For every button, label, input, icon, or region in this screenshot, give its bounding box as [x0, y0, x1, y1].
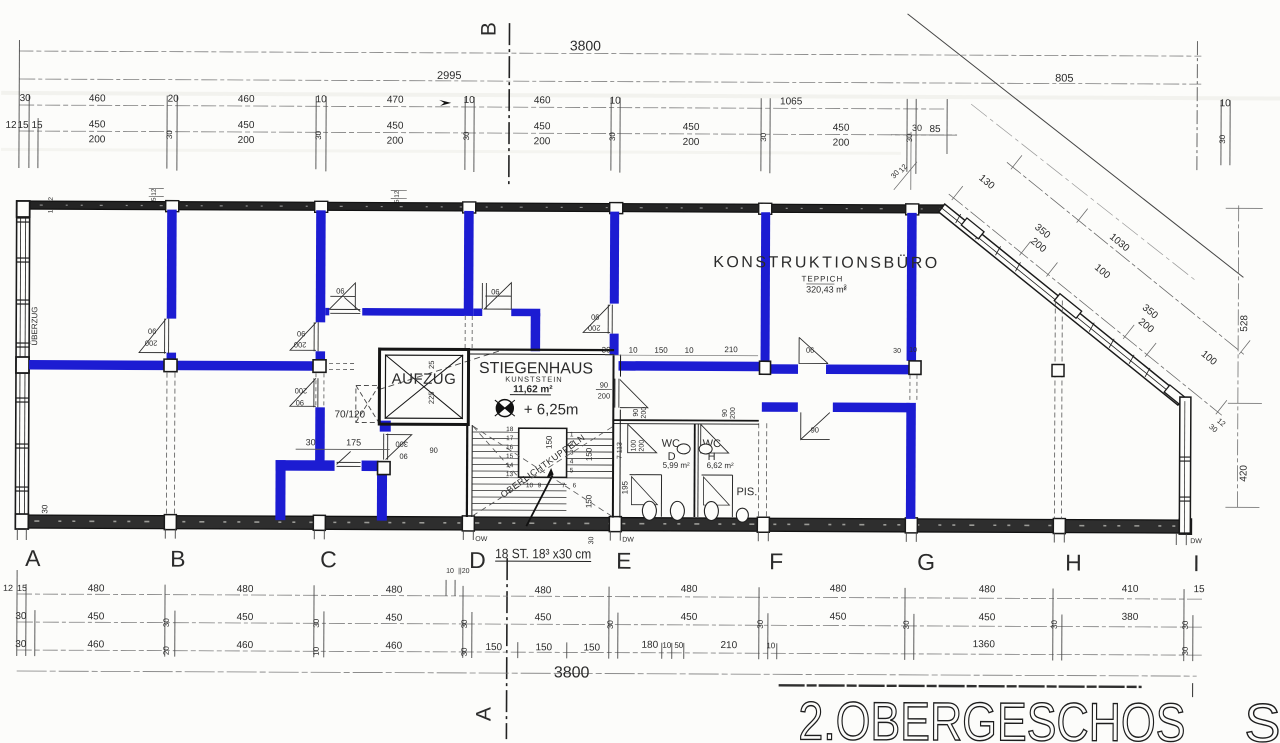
svg-text:90: 90: [296, 398, 304, 407]
svg-text:450: 450: [387, 121, 404, 132]
svg-text:6,62 m²: 6,62 m²: [707, 461, 734, 470]
svg-text:420: 420: [1239, 465, 1250, 482]
svg-text:480: 480: [88, 583, 105, 594]
svg-text:480: 480: [237, 584, 254, 595]
svg-text:PIS.: PIS.: [736, 486, 757, 498]
svg-text:30: 30: [40, 504, 49, 513]
svg-text:200: 200: [89, 134, 106, 145]
svg-text:6: 6: [573, 482, 577, 489]
svg-text:470: 470: [387, 95, 404, 106]
svg-text:180: 180: [641, 640, 658, 651]
svg-text:30: 30: [608, 132, 617, 141]
svg-text:50: 50: [674, 641, 683, 650]
svg-text:30: 30: [162, 618, 171, 627]
svg-text:||20: ||20: [458, 568, 470, 575]
svg-text:30: 30: [912, 123, 922, 133]
svg-text:450: 450: [535, 612, 552, 623]
svg-text:H: H: [1065, 550, 1082, 576]
svg-text:805: 805: [1055, 73, 1073, 85]
svg-text:30: 30: [314, 130, 323, 139]
svg-text:9: 9: [538, 482, 542, 489]
svg-text:10: 10: [446, 568, 454, 575]
svg-text:5,99 m²: 5,99 m²: [663, 461, 690, 470]
svg-text:225: 225: [427, 392, 436, 405]
svg-text:200: 200: [730, 407, 737, 419]
svg-text:380: 380: [1122, 612, 1139, 623]
svg-text:200: 200: [294, 340, 307, 349]
svg-text:300: 300: [395, 440, 408, 449]
svg-text:3800: 3800: [554, 664, 590, 681]
svg-text:480: 480: [386, 585, 403, 596]
svg-text:10: 10: [1220, 98, 1232, 109]
svg-text:90: 90: [600, 381, 608, 390]
svg-text:450: 450: [89, 119, 106, 130]
svg-text:15: 15: [31, 120, 43, 131]
svg-text:460: 460: [87, 639, 104, 650]
svg-text:90: 90: [591, 312, 599, 321]
svg-text:5: 5: [570, 467, 574, 474]
svg-text:15: 15: [506, 453, 514, 460]
svg-text:3800: 3800: [570, 37, 601, 53]
svg-text:150: 150: [584, 494, 593, 508]
svg-text:F: F: [769, 548, 783, 574]
svg-text:460: 460: [238, 94, 255, 105]
svg-text:30: 30: [588, 536, 595, 544]
svg-text:150: 150: [485, 642, 502, 653]
svg-text:85: 85: [929, 124, 941, 135]
svg-text:13: 13: [506, 471, 514, 478]
svg-text:7: 7: [562, 482, 566, 489]
svg-text:S: S: [1244, 693, 1280, 743]
svg-text:15: 15: [17, 583, 27, 593]
svg-text:2995: 2995: [437, 70, 462, 82]
svg-text:480: 480: [535, 585, 552, 596]
svg-text:18 ST. 18³ x30 cm: 18 ST. 18³ x30 cm: [495, 546, 591, 561]
svg-text:460: 460: [89, 93, 106, 104]
svg-text:450: 450: [238, 120, 255, 131]
svg-text:AUFZUG: AUFZUG: [392, 371, 457, 388]
svg-text:E: E: [616, 548, 631, 574]
svg-text:10: 10: [312, 646, 321, 655]
svg-text:30: 30: [1181, 620, 1190, 629]
svg-text:B: B: [170, 546, 185, 572]
svg-text:90: 90: [399, 452, 407, 461]
svg-text:70/120: 70/120: [334, 409, 365, 420]
svg-text:90: 90: [722, 409, 729, 417]
svg-text:4: 4: [570, 458, 574, 465]
svg-text:30: 30: [20, 93, 32, 104]
svg-text:18: 18: [506, 426, 514, 433]
svg-text:+ 6,25m: + 6,25m: [524, 401, 579, 418]
svg-text:16: 16: [506, 444, 514, 451]
svg-text:10: 10: [685, 346, 694, 355]
svg-text:7 113: 7 113: [617, 442, 624, 459]
svg-text:12: 12: [5, 120, 17, 131]
svg-text:DW: DW: [622, 537, 634, 544]
svg-text:10: 10: [464, 95, 476, 106]
svg-text:10: 10: [629, 346, 638, 355]
svg-text:12: 12: [3, 583, 13, 593]
svg-text:450: 450: [830, 612, 847, 623]
svg-text:30: 30: [460, 619, 469, 628]
svg-text:10: 10: [766, 641, 775, 650]
svg-text:450: 450: [88, 611, 105, 622]
svg-text:90: 90: [148, 327, 156, 336]
svg-text:200: 200: [387, 136, 404, 147]
svg-text:KONSTRUKTIONSBÜRO: KONSTRUKTIONSBÜRO: [713, 253, 940, 272]
svg-text:OW: OW: [475, 536, 487, 543]
svg-text:210: 210: [724, 345, 738, 354]
svg-text:480: 480: [979, 584, 996, 595]
svg-text:10: 10: [316, 94, 328, 105]
svg-text:528: 528: [1239, 315, 1250, 332]
svg-text:25: 25: [427, 361, 436, 369]
svg-text:30: 30: [1218, 134, 1227, 143]
svg-text:200: 200: [641, 407, 648, 419]
svg-text:20: 20: [168, 94, 180, 105]
svg-text:30: 30: [759, 132, 768, 141]
svg-text:17: 17: [506, 435, 514, 442]
svg-text:450: 450: [534, 121, 551, 132]
svg-text:460: 460: [385, 641, 402, 652]
svg-text:2.OBERGESCHOS: 2.OBERGESCHOS: [798, 691, 1185, 743]
svg-text:15: 15: [1193, 584, 1205, 595]
svg-text:30: 30: [312, 618, 321, 627]
svg-text:14: 14: [506, 462, 514, 469]
svg-text:TEPPICH: TEPPICH: [802, 274, 844, 283]
svg-text:460: 460: [236, 640, 253, 651]
svg-text:200: 200: [683, 137, 700, 148]
svg-text:480: 480: [830, 584, 847, 595]
svg-text:150: 150: [535, 642, 552, 653]
svg-text:410: 410: [1122, 584, 1139, 595]
svg-text:200: 200: [598, 392, 611, 401]
svg-text:1360: 1360: [973, 639, 996, 650]
svg-text:200: 200: [833, 138, 850, 149]
svg-text:90: 90: [806, 345, 814, 354]
svg-text:195: 195: [620, 480, 629, 494]
svg-text:10: 10: [610, 96, 622, 107]
svg-text:450: 450: [386, 613, 403, 624]
svg-text:450: 450: [979, 612, 996, 623]
svg-text:90: 90: [297, 329, 305, 338]
svg-text:30: 30: [893, 348, 901, 355]
svg-text:480: 480: [681, 584, 698, 595]
svg-text:450: 450: [833, 123, 850, 134]
svg-text:15: 15: [17, 120, 29, 131]
svg-text:210: 210: [720, 640, 737, 651]
svg-text:30: 30: [165, 130, 174, 139]
svg-text:1065: 1065: [780, 96, 803, 107]
svg-text:320,43 m²: 320,43 m²: [806, 284, 847, 294]
svg-text:90: 90: [336, 286, 344, 295]
svg-text:KUNSTSTEIN: KUNSTSTEIN: [505, 375, 563, 384]
svg-text:450: 450: [681, 612, 698, 623]
svg-text:150: 150: [585, 447, 594, 461]
svg-text:11,62 m²: 11,62 m²: [513, 384, 553, 395]
svg-text:450: 450: [237, 612, 254, 623]
svg-text:30: 30: [1181, 646, 1190, 655]
svg-text:30: 30: [15, 611, 27, 622]
svg-text:G: G: [917, 549, 935, 575]
svg-text:30: 30: [905, 133, 914, 142]
svg-text:200: 200: [588, 323, 601, 332]
svg-text:DW: DW: [1190, 538, 1202, 545]
svg-text:100: 100: [631, 440, 638, 452]
svg-text:90: 90: [633, 409, 640, 417]
svg-text:D: D: [469, 547, 486, 573]
svg-text:460: 460: [534, 95, 551, 106]
svg-text:30: 30: [306, 437, 316, 447]
svg-text:ÜBERZUG: ÜBERZUG: [30, 306, 39, 345]
svg-text:10: 10: [909, 347, 917, 354]
svg-text:30: 30: [602, 346, 611, 355]
svg-text:90: 90: [491, 287, 499, 296]
svg-text:90: 90: [811, 425, 819, 434]
svg-text:175: 175: [346, 437, 361, 447]
svg-text:90: 90: [429, 446, 437, 455]
svg-text:30: 30: [1050, 620, 1059, 629]
svg-text:450: 450: [683, 122, 700, 133]
svg-text:10: 10: [662, 641, 671, 650]
svg-text:A: A: [25, 545, 41, 571]
svg-text:C: C: [320, 546, 337, 572]
svg-text:200: 200: [534, 136, 551, 147]
svg-text:150: 150: [583, 642, 600, 653]
svg-text:30: 30: [756, 619, 765, 628]
svg-text:B: B: [477, 22, 500, 36]
svg-text:150: 150: [545, 435, 554, 449]
svg-text:200: 200: [238, 135, 255, 146]
svg-text:20: 20: [162, 646, 171, 655]
svg-text:30: 30: [15, 639, 27, 650]
svg-text:200: 200: [295, 386, 308, 395]
svg-text:30: 30: [462, 131, 471, 140]
svg-text:150: 150: [654, 346, 668, 355]
svg-text:A: A: [472, 707, 495, 721]
svg-text:30: 30: [606, 620, 615, 629]
svg-text:200: 200: [639, 440, 646, 452]
svg-text:30: 30: [460, 647, 469, 656]
svg-text:I: I: [1193, 550, 1200, 576]
svg-text:200: 200: [145, 339, 158, 348]
svg-text:30: 30: [902, 620, 911, 629]
